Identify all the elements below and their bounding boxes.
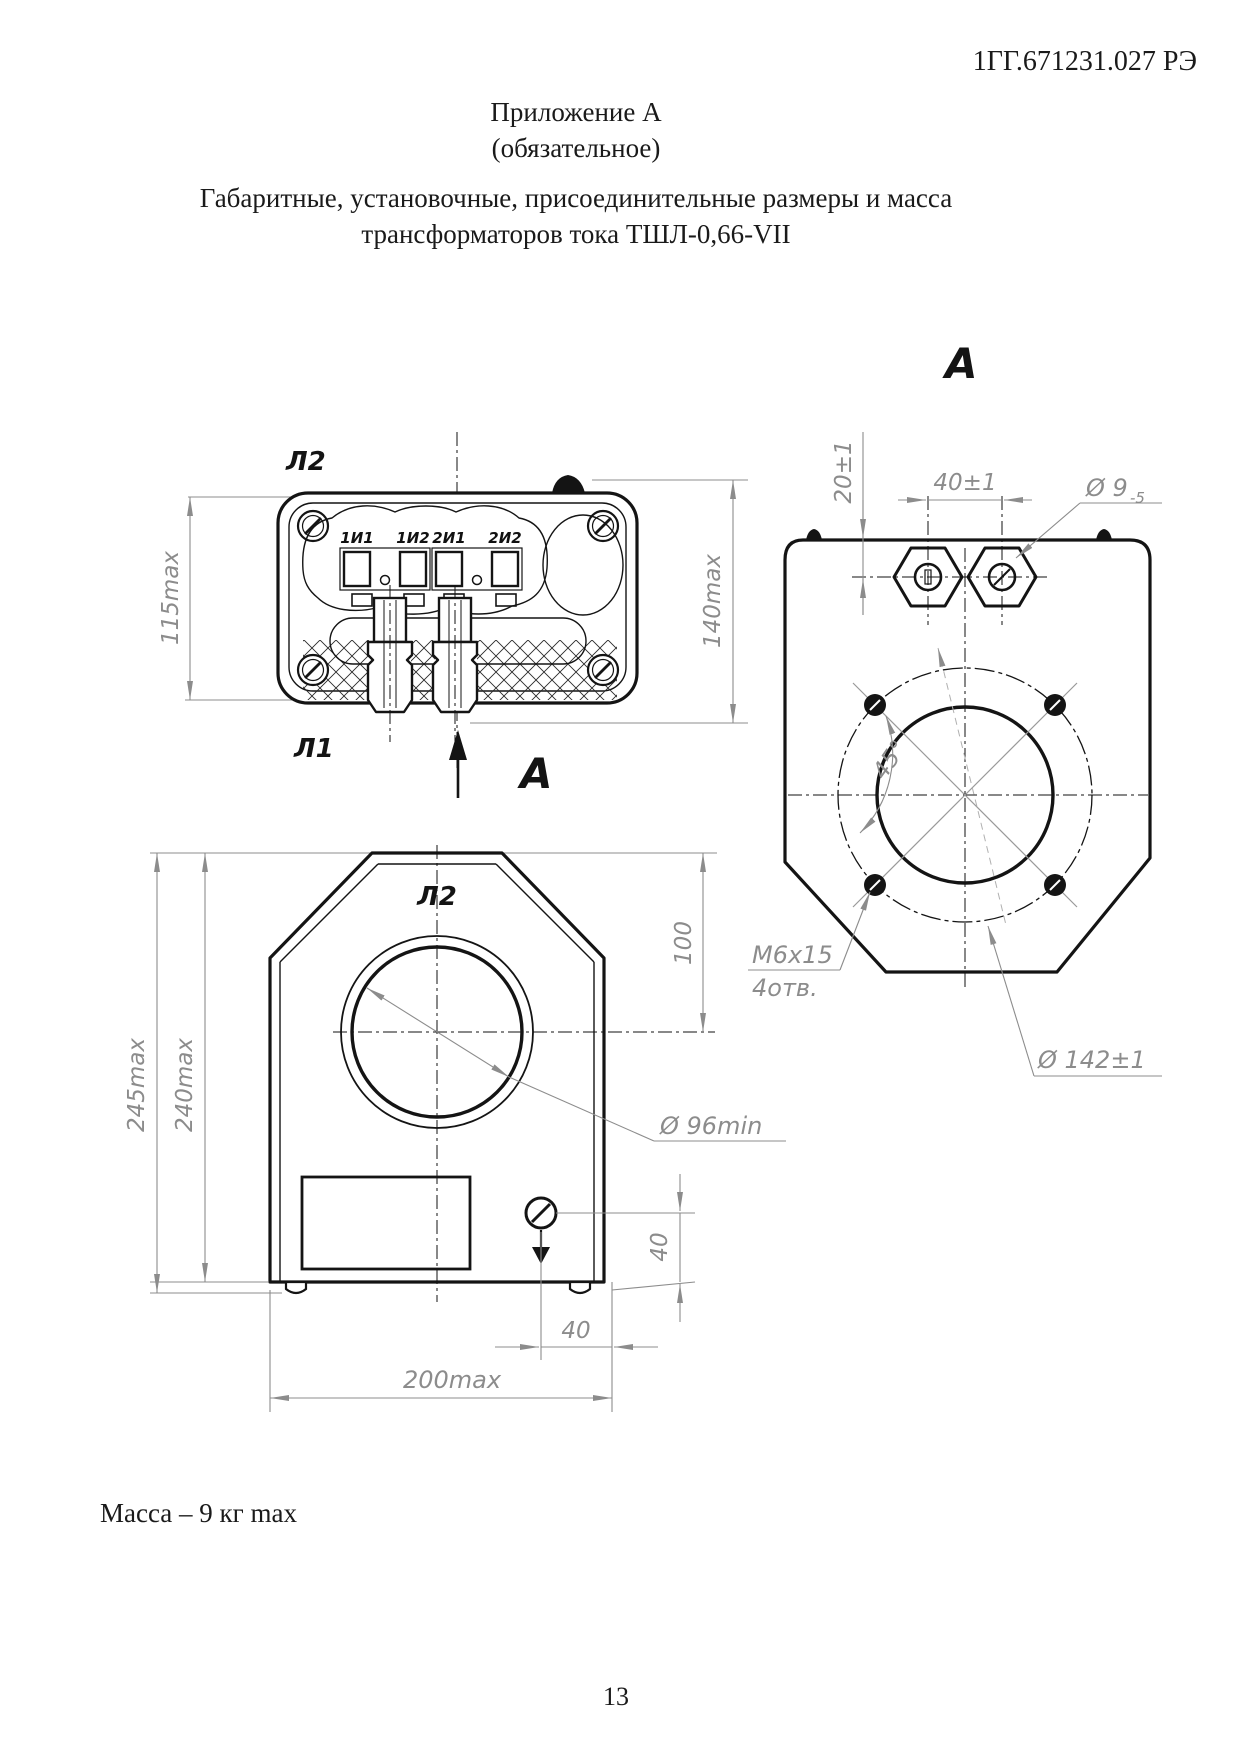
cable-gland-left	[368, 585, 412, 742]
view-arrow-label: А	[517, 749, 553, 798]
dim-200max-text: 200max	[403, 1366, 502, 1394]
callout-d9-text: Ø 9	[1085, 474, 1128, 502]
dim-40-horizontal: 40	[495, 1318, 658, 1347]
dim-240max: 240max	[172, 853, 205, 1282]
dim-245max: 245max	[124, 853, 157, 1293]
cable-gland-right	[433, 585, 477, 742]
terminal-label-1i1: 1И1	[340, 529, 373, 547]
terminal-label-2i1: 2И1	[432, 529, 465, 547]
top-view: 115max 140max	[158, 432, 748, 798]
view-a-title: А	[942, 339, 978, 388]
front-view: 245max 240max Л2	[124, 845, 786, 1412]
page-number: 13	[0, 1682, 1232, 1712]
dim-20-text: 20±1	[831, 440, 857, 503]
terminal-label-1i2: 1И2	[396, 529, 429, 547]
dim-115max-text: 115max	[158, 551, 184, 645]
dim-40-horizontal-text: 40	[561, 1318, 590, 1344]
top-latch	[552, 475, 585, 493]
document-page: 1ГГ.671231.027 РЭ Приложение А (обязател…	[0, 0, 1241, 1755]
technical-drawing: 115max 140max	[0, 0, 1241, 1755]
label-l2-front-view: Л2	[416, 882, 457, 912]
dim-245max-text: 245max	[124, 1038, 150, 1132]
foot-left	[286, 1282, 306, 1293]
dim-100-text: 100	[671, 921, 697, 965]
dim-40-spacing: 40±1	[898, 470, 1032, 500]
terminal-label-2i2: 2И2	[488, 529, 521, 547]
callout-d142-text: Ø 142±1	[1037, 1046, 1146, 1074]
dim-100: 100	[671, 853, 703, 1032]
view-direction-arrow: А	[449, 730, 553, 798]
dim-40-spacing-text: 40±1	[933, 470, 996, 496]
callout-m6-text: М6х15	[752, 941, 833, 969]
callout-d9-tolerance: -5	[1130, 489, 1145, 507]
view-a-body	[785, 540, 1150, 972]
label-l1-top-view: Л1	[293, 734, 334, 764]
label-l2-top-view: Л2	[285, 447, 326, 477]
foot-right	[570, 1282, 590, 1293]
callout-d96-text: Ø 96min	[659, 1112, 762, 1140]
dim-40-vertical-text: 40	[647, 1232, 673, 1261]
dim-115max: 115max	[158, 497, 292, 700]
dim-140max-text: 140max	[700, 554, 726, 648]
dim-40-vertical: 40	[647, 1174, 680, 1322]
view-a: А 45°	[748, 339, 1162, 1076]
dim-200max: 200max	[270, 1366, 612, 1398]
dim-240max-text: 240max	[172, 1038, 198, 1132]
mass-note: Масса – 9 кг max	[100, 1498, 297, 1529]
callout-m6-holes: 4отв.	[752, 974, 818, 1002]
